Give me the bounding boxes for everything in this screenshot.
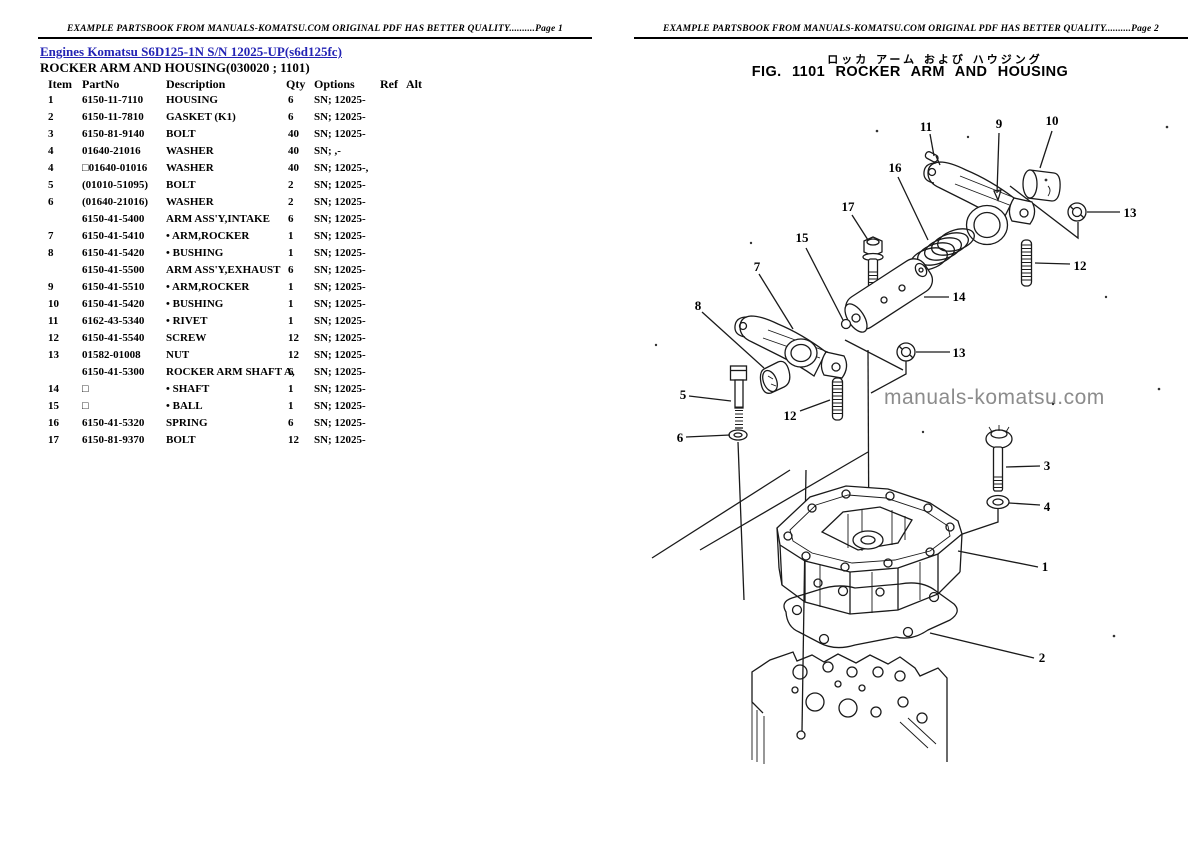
stud-middle [833,378,843,420]
bolt-5 [731,366,747,428]
cell-opt: SN; 12025- [314,128,444,140]
section-title: ROCKER ARM AND HOUSING(030020 ; 1101) [40,60,310,76]
cell-item: 4 [44,145,82,157]
bushing-bottom [760,361,790,393]
cell-opt: SN; 12025- [314,315,444,327]
figure-title: FIG. 1101 ROCKER ARM AND HOUSING [640,64,1180,80]
cell-part: 6150-41-5420 [82,298,166,310]
page1-header: EXAMPLE PARTSBOOK FROM MANUALS-KOMATSU.C… [38,24,592,39]
callout-17: 17 [842,199,856,214]
cell-part: 6150-81-9140 [82,128,166,140]
cell-desc: SCREW [166,332,286,344]
cell-qty: 1 [286,400,314,412]
cell-desc: ROCKER ARM SHAFT A, [166,366,286,378]
cell-qty: 40 [286,145,314,157]
cell-part: 6150-11-7810 [82,111,166,123]
cell-item: 5 [44,179,82,191]
cell-desc: HOUSING [166,94,286,106]
gasket [784,583,957,648]
cell-desc: • RIVET [166,315,286,327]
cell-qty: 12 [286,332,314,344]
callout-10: 10 [1046,113,1059,128]
cell-part: 6150-41-5410 [82,230,166,242]
cell-part: 6150-41-5500 [82,264,166,276]
rocker-shaft [841,254,938,336]
cell-item: 16 [44,417,82,429]
callout-14: 14 [953,289,967,304]
cell-qty: 1 [286,383,314,395]
callout-13: 13 [1124,205,1138,220]
cell-opt: SN; 12025- [314,94,444,106]
cell-qty: 6 [286,111,314,123]
cell-opt: SN; 12025- [314,213,444,225]
cell-qty: 1 [286,281,314,293]
cell-opt: SN; 12025- [314,111,444,123]
callout-15: 15 [796,230,810,245]
cell-item: 17 [44,434,82,446]
cell-opt: SN; ,- [314,145,444,157]
page2-header: EXAMPLE PARTSBOOK FROM MANUALS-KOMATSU.C… [634,24,1188,39]
table-row: 6150-41-5500ARM ASS'Y,EXHAUST6SN; 12025- [44,264,444,281]
table-row: 5(01010-51095)BOLT2SN; 12025- [44,179,444,196]
cylinder-head [752,652,947,764]
cell-desc: WASHER [166,196,286,208]
nut-right [1068,203,1086,221]
cell-opt: SN; 12025- [314,230,444,242]
callout-5: 5 [680,387,687,402]
cell-desc: • ARM,ROCKER [166,230,286,242]
callout-6: 6 [677,430,684,445]
stud-right [1022,240,1032,286]
cell-opt: SN; 12025- [314,281,444,293]
callout-12: 12 [1074,258,1087,273]
cell-part: 6150-81-9370 [82,434,166,446]
cell-opt: SN; 12025-, [314,162,444,174]
cell-desc: • ARM,ROCKER [166,281,286,293]
cell-desc: GASKET (K1) [166,111,286,123]
cell-qty: 6 [286,213,314,225]
cell-opt: SN; 12025- [314,196,444,208]
cell-part: 6150-41-5300 [82,366,166,378]
table-row: 76150-41-5410• ARM,ROCKER1SN; 12025- [44,230,444,247]
rocker-arm-intake [924,162,1035,245]
callout-13: 13 [953,345,967,360]
cell-qty: 6 [286,264,314,276]
table-row: 26150-11-7810GASKET (K1)6SN; 12025- [44,111,444,128]
cell-item: 14 [44,383,82,395]
cell-qty: 40 [286,128,314,140]
cell-part: 6150-11-7110 [82,94,166,106]
cell-opt: SN; 12025- [314,383,444,395]
cell-part: □ [82,400,166,412]
table-header-ref: Ref [380,77,406,92]
cell-opt: SN; 12025- [314,366,444,378]
cell-item: 3 [44,128,82,140]
cell-desc: WASHER [166,145,286,157]
cell-desc: ARM ASS'Y,INTAKE [166,213,286,225]
table-row: 126150-41-5540SCREW12SN; 12025- [44,332,444,349]
cell-qty: 1 [286,298,314,310]
table-body: 16150-11-7110HOUSING6SN; 12025-26150-11-… [44,94,444,451]
cell-item: 4 [44,162,82,174]
cell-opt: SN; 12025- [314,400,444,412]
cell-qty: 2 [286,196,314,208]
partsbook-spread: { "pages": { "left": { "header": "EXAMPL… [0,0,1190,842]
cell-item: 11 [44,315,82,327]
leader-lines [686,131,1120,658]
table-row: 96150-41-5510• ARM,ROCKER1SN; 12025- [44,281,444,298]
table-header-item: Item [44,77,82,92]
cell-item: 1 [44,94,82,106]
cell-desc: SPRING [166,417,286,429]
cell-qty: 1 [286,247,314,259]
table-row: 6150-41-5300ROCKER ARM SHAFT A,6SN; 1202… [44,366,444,383]
cell-item: 12 [44,332,82,344]
cell-item: 9 [44,281,82,293]
callout-7: 7 [754,259,761,274]
callout-9: 9 [996,116,1003,131]
cell-desc: BOLT [166,128,286,140]
table-row: 401640-21016WASHER40SN; ,- [44,145,444,162]
table-row: 116162-43-5340• RIVET1SN; 12025- [44,315,444,332]
callout-11: 11 [920,119,932,134]
callout-4: 4 [1044,499,1051,514]
callout-12: 12 [784,408,797,423]
table-row: 16150-11-7110HOUSING6SN; 12025- [44,94,444,111]
cell-item: 13 [44,349,82,361]
table-row: 14□• SHAFT1SN; 12025- [44,383,444,400]
cell-item: 8 [44,247,82,259]
table-header-partno: PartNo [82,77,166,92]
cell-opt: SN; 12025- [314,417,444,429]
table-row: 106150-41-5420• BUSHING1SN; 12025- [44,298,444,315]
cell-opt: SN; 12025- [314,247,444,259]
table-row: 36150-81-9140BOLT40SN; 12025- [44,128,444,145]
cell-desc: • BUSHING [166,247,286,259]
parts-table: ItemPartNoDescriptionQtyOptionsRefAlt 16… [44,77,444,451]
cell-item: 6 [44,196,82,208]
table-row: 1301582-01008NUT12SN; 12025- [44,349,444,366]
callout-8: 8 [695,298,702,313]
cell-qty: 12 [286,349,314,361]
cell-qty: 12 [286,434,314,446]
table-row: 6150-41-5400ARM ASS'Y,INTAKE6SN; 12025- [44,213,444,230]
cell-part: □ [82,383,166,395]
cell-item: 2 [44,111,82,123]
cell-opt: SN; 12025- [314,332,444,344]
exploded-parts-diagram: 11910161317157121481351263412 [636,95,1190,795]
cell-part: 6150-41-5400 [82,213,166,225]
housing [777,486,962,614]
cell-qty: 6 [286,417,314,429]
washer-6 [729,430,747,440]
cell-opt: SN; 12025- [314,434,444,446]
cell-part: 6150-41-5510 [82,281,166,293]
cell-qty: 1 [286,315,314,327]
cell-desc: ARM ASS'Y,EXHAUST [166,264,286,276]
cell-part: 6150-41-5320 [82,417,166,429]
cell-qty: 6 [286,94,314,106]
cell-desc: • SHAFT [166,383,286,395]
table-row: 176150-81-9370BOLT12SN; 12025- [44,434,444,451]
cell-item: 15 [44,400,82,412]
cell-qty: 2 [286,179,314,191]
cell-desc: • BALL [166,400,286,412]
bushing-top [1023,170,1060,201]
table-header-description: Description [166,77,286,92]
table-header-alt: Alt [406,77,434,92]
table-row: 4□01640-01016WASHER40SN; 12025-, [44,162,444,179]
callout-1: 1 [1042,559,1049,574]
table-row: 6(01640-21016)WASHER2SN; 12025- [44,196,444,213]
cell-part: 01640-21016 [82,145,166,157]
callout-2: 2 [1039,650,1046,665]
cell-desc: BOLT [166,179,286,191]
cell-desc: NUT [166,349,286,361]
callout-16: 16 [889,160,903,175]
nut-middle [871,343,915,393]
construction-lines [652,186,1078,739]
table-row: 15□• BALL1SN; 12025- [44,400,444,417]
bolt-3 [986,425,1012,491]
cell-item: 7 [44,230,82,242]
cell-desc: • BUSHING [166,298,286,310]
cell-part: 6150-41-5420 [82,247,166,259]
cell-desc: WASHER [166,162,286,174]
breadcrumb-engine-link[interactable]: Engines Komatsu S6D125-1N S/N 12025-UP(s… [40,44,342,60]
cell-desc: BOLT [166,434,286,446]
callout-3: 3 [1044,458,1051,473]
cell-opt: SN; 12025- [314,349,444,361]
cell-part: (01640-21016) [82,196,166,208]
table-row: 86150-41-5420• BUSHING1SN; 12025- [44,247,444,264]
cell-qty: 6 [286,366,314,378]
table-header-qty: Qty [286,77,314,92]
cell-part: (01010-51095) [82,179,166,191]
cell-part: 6162-43-5340 [82,315,166,327]
cell-opt: SN; 12025- [314,179,444,191]
table-header-row: ItemPartNoDescriptionQtyOptionsRefAlt [44,77,444,94]
cell-opt: SN; 12025- [314,264,444,276]
ball [842,320,851,329]
table-header-options: Options [314,77,380,92]
cell-part: 6150-41-5540 [82,332,166,344]
cell-part: □01640-01016 [82,162,166,174]
cell-part: 01582-01008 [82,349,166,361]
cell-opt: SN; 12025- [314,298,444,310]
cell-qty: 40 [286,162,314,174]
cell-qty: 1 [286,230,314,242]
table-row: 166150-41-5320SPRING6SN; 12025- [44,417,444,434]
cell-item: 10 [44,298,82,310]
